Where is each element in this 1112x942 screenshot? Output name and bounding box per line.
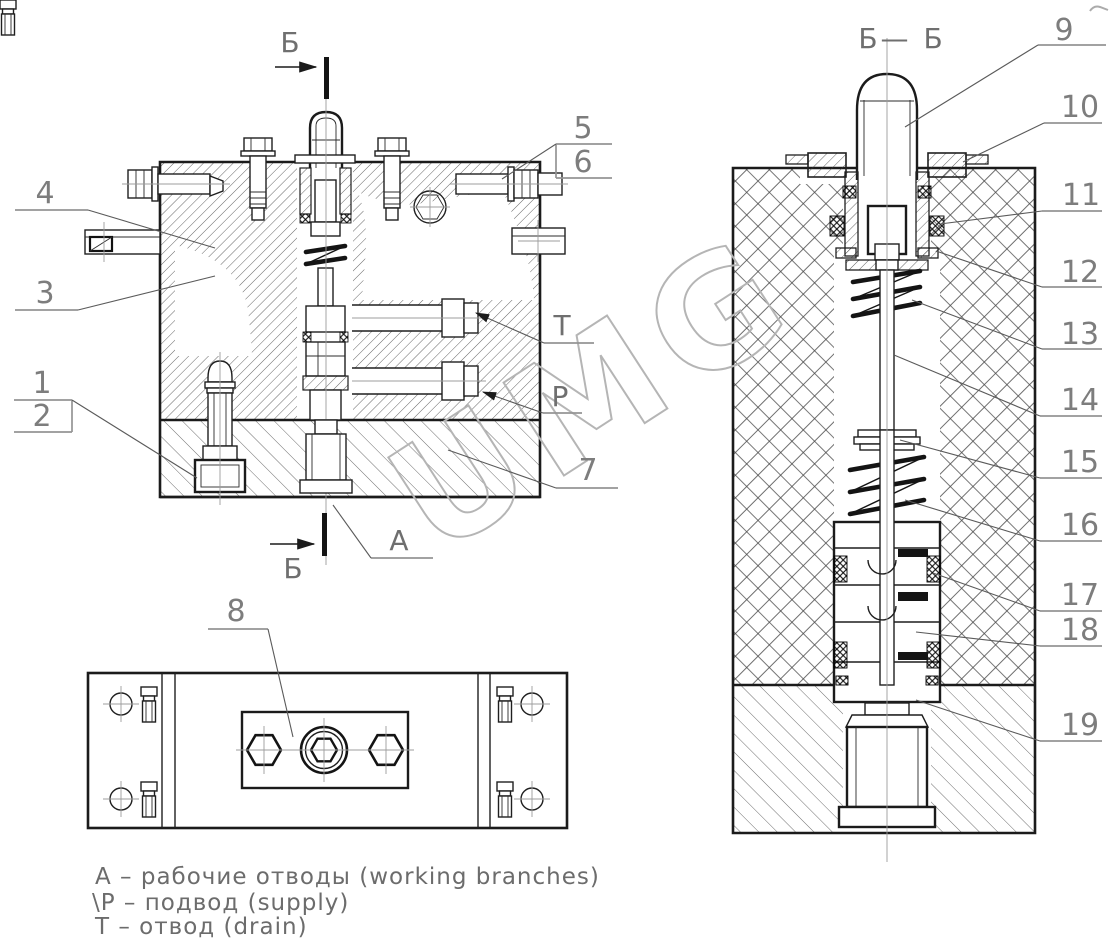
svg-text:6: 6 <box>573 145 592 180</box>
seal-ring <box>843 186 856 198</box>
legend-line-p: \Р – подвод (supply) <box>92 890 349 916</box>
svg-text:2: 2 <box>32 399 51 434</box>
seal-ring <box>834 556 847 582</box>
svg-text:12: 12 <box>1061 255 1099 290</box>
legend: А – рабочие отводы (working branches) \Р… <box>92 864 600 940</box>
svg-text:9: 9 <box>1054 13 1073 48</box>
svg-text:А: А <box>389 524 408 557</box>
svg-text:Т: Т <box>552 309 571 342</box>
corner-mark <box>1090 7 1108 12</box>
svg-text:1: 1 <box>32 366 51 401</box>
seal-ring <box>930 216 944 236</box>
svg-text:17: 17 <box>1061 578 1099 613</box>
seal-ring <box>830 216 844 236</box>
svg-text:7: 7 <box>578 453 597 488</box>
svg-text:15: 15 <box>1061 445 1099 480</box>
section-marker-top: Б <box>275 26 329 99</box>
callout-10: 10 <box>963 90 1102 162</box>
svg-text:5: 5 <box>573 111 592 146</box>
svg-text:16: 16 <box>1061 508 1099 543</box>
port-t-passage <box>352 299 486 337</box>
svg-text:18: 18 <box>1061 613 1099 648</box>
seal-ring <box>834 642 847 668</box>
section-view-b-b <box>733 38 1035 862</box>
svg-text:11: 11 <box>1062 178 1100 213</box>
legend-line-t: Т – отвод (drain) <box>94 914 308 940</box>
svg-text:19: 19 <box>1061 708 1099 743</box>
seal-ring <box>927 556 940 582</box>
svg-text:8: 8 <box>226 594 245 629</box>
section-view-title: Б— Б <box>858 22 945 55</box>
seal-ring <box>927 642 940 668</box>
svg-text:3: 3 <box>35 276 54 311</box>
svg-text:Б: Б <box>283 552 302 585</box>
technical-drawing: UMG Б Б Б— Б 4 3 1 2 5 6 Т <box>0 0 1112 942</box>
svg-text:13: 13 <box>1061 317 1099 352</box>
svg-text:Б: Б <box>280 26 299 59</box>
section-marker-bottom: Б <box>270 513 327 585</box>
svg-text:10: 10 <box>1061 90 1099 125</box>
bottom-port-plate <box>236 712 414 788</box>
svg-text:Р: Р <box>552 380 569 413</box>
seal-ring <box>918 186 931 198</box>
svg-text:4: 4 <box>35 176 54 211</box>
svg-text:14: 14 <box>1061 383 1099 418</box>
drawing-sheet: UMG Б Б Б— Б 4 3 1 2 5 6 Т <box>0 0 1112 942</box>
legend-line-a: А – рабочие отводы (working branches) <box>95 864 600 890</box>
